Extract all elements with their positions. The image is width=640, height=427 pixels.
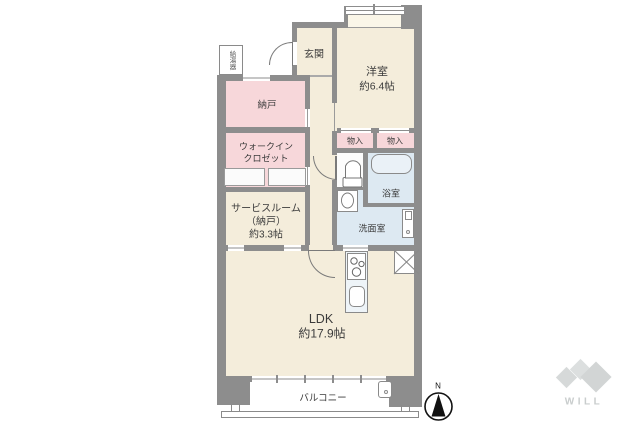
- balcony-window-mullion: [360, 375, 362, 383]
- wall-hall-left: [305, 81, 310, 251]
- nando-window: [243, 75, 270, 81]
- wall-hall-right-a: [332, 28, 337, 103]
- balcony-pillar-left: [217, 376, 250, 405]
- balcony-window-mullion: [276, 375, 278, 383]
- label-wic-2: クロゼット: [243, 152, 288, 165]
- washroom-sliding-door: [343, 245, 368, 251]
- wall-yoshitsu-top: [292, 22, 347, 28]
- label-yoshitsu: 洋室: [366, 63, 388, 79]
- balcony-handrail: [221, 411, 419, 418]
- balcony-post-left: [231, 404, 240, 411]
- room-toilet: [337, 153, 363, 189]
- label-service-3: 約3.3帖: [249, 226, 283, 241]
- ldk-door-leaf: [308, 250, 335, 252]
- water-heater-label: 給湯器: [226, 50, 236, 70]
- storage-right-door: [379, 128, 409, 133]
- wall-hall-right-c: [332, 180, 337, 251]
- wall-nando-wic: [217, 127, 310, 133]
- balcony-window-mullion: [304, 375, 306, 383]
- label-genkan: 玄関: [304, 46, 324, 61]
- wic-shelf-left: [224, 168, 265, 186]
- wall-left: [217, 75, 226, 382]
- compass-icon: [425, 393, 452, 420]
- compass-n-label: N: [435, 382, 441, 391]
- balcony-sink-dot: [384, 390, 388, 394]
- storage-left-door: [341, 128, 371, 133]
- washer-drain-dot: [406, 230, 410, 234]
- wall-storage-divider: [373, 131, 377, 148]
- service-door-right: [284, 245, 301, 251]
- balcony-window-mullion: [332, 375, 334, 383]
- toilet-door-leaf: [335, 156, 337, 180]
- entrance-door-arc: [269, 42, 292, 65]
- label-storage-right: 物入: [387, 136, 403, 147]
- label-balcony: バルコニー: [299, 390, 346, 404]
- floor-plan: 給湯器: [0, 0, 640, 427]
- label-yoshitsu-size: 約6.4帖: [359, 79, 395, 94]
- washer-faucet-box: [405, 211, 412, 220]
- label-storage-left: 物入: [347, 136, 363, 147]
- yoshitsu-door-leaf: [334, 103, 335, 131]
- will-logo-text: WILL: [565, 397, 603, 408]
- nando-door: [305, 109, 310, 127]
- vanity-icon: [337, 190, 358, 212]
- label-washroom: 洗面室: [358, 222, 385, 235]
- label-nando: 納戸: [257, 97, 276, 111]
- balcony-pillar-right: [389, 376, 422, 407]
- label-bath: 浴室: [382, 187, 400, 200]
- service-door-left: [228, 245, 244, 251]
- entrance-door-leaf: [292, 42, 294, 66]
- wall-toilet-right: [363, 153, 368, 207]
- kitchen-sink-icon: [349, 286, 365, 307]
- bay-window: [345, 6, 405, 15]
- wall-toilet-bottom: [337, 187, 363, 190]
- stove-icon: [347, 253, 366, 280]
- wic-shelf-right: [268, 168, 306, 186]
- wall-right: [414, 29, 422, 382]
- wall-wic-service: [217, 187, 310, 192]
- bathtub-icon: [371, 154, 412, 174]
- label-ldk-size: 約17.9帖: [298, 325, 345, 342]
- wall-storage-bottom: [337, 148, 414, 153]
- wall-bath-bottom: [363, 203, 414, 207]
- balcony-window: [252, 376, 386, 382]
- bay-window-mullion: [373, 4, 375, 14]
- genkan-step-line: [310, 75, 332, 77]
